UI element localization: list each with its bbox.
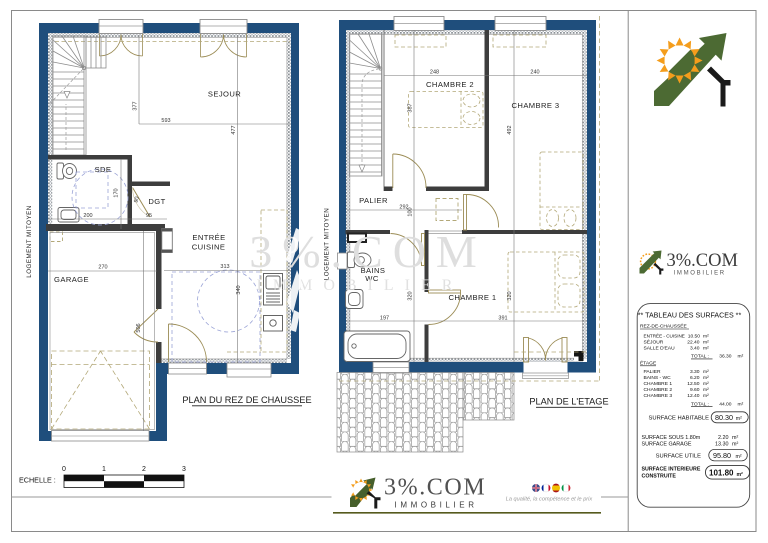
svg-text:m²: m² bbox=[703, 381, 709, 387]
svg-text:248: 248 bbox=[430, 70, 439, 76]
svg-text:CONSTRUITE: CONSTRUITE bbox=[642, 473, 677, 479]
svg-text:170: 170 bbox=[114, 188, 120, 197]
svg-text:95.80: 95.80 bbox=[713, 451, 731, 460]
svg-text:320: 320 bbox=[507, 291, 513, 300]
svg-text:m²: m² bbox=[738, 354, 744, 360]
svg-text:391: 391 bbox=[498, 316, 507, 322]
svg-text:PALIER: PALIER bbox=[644, 369, 662, 375]
svg-text:593: 593 bbox=[161, 118, 170, 124]
svg-text:CHAMBRE 2: CHAMBRE 2 bbox=[426, 80, 474, 89]
svg-text:CUISINE: CUISINE bbox=[192, 243, 226, 252]
svg-text:2.20: 2.20 bbox=[718, 435, 729, 441]
svg-text:PALIER: PALIER bbox=[359, 196, 388, 205]
svg-text:La qualité, la compétence et l: La qualité, la compétence et le prix bbox=[506, 497, 593, 503]
svg-text:270: 270 bbox=[98, 265, 107, 271]
svg-text:SURFACE HABITABLE: SURFACE HABITABLE bbox=[649, 416, 710, 422]
svg-text:CHAMBRE 3: CHAMBRE 3 bbox=[512, 101, 560, 110]
svg-text:1: 1 bbox=[102, 466, 106, 473]
svg-text:CHAMBRE 3: CHAMBRE 3 bbox=[644, 393, 673, 399]
svg-text:m²: m² bbox=[732, 435, 738, 441]
svg-text:101.80: 101.80 bbox=[709, 469, 734, 478]
svg-text:22.40: 22.40 bbox=[687, 340, 700, 346]
svg-text:ENTRÉE: ENTRÉE bbox=[192, 233, 225, 242]
svg-text:3.30: 3.30 bbox=[690, 369, 700, 375]
svg-text:240: 240 bbox=[530, 70, 539, 76]
svg-text:SURFACE INTERIEURE: SURFACE INTERIEURE bbox=[642, 467, 701, 473]
svg-text:IMMOBILIER: IMMOBILIER bbox=[395, 501, 478, 510]
svg-text:197: 197 bbox=[380, 316, 389, 322]
svg-text:ÉTAGE: ÉTAGE bbox=[640, 359, 657, 366]
svg-text:CHAMBRE 1: CHAMBRE 1 bbox=[644, 381, 673, 387]
svg-text:377: 377 bbox=[133, 101, 139, 110]
svg-text:36.30: 36.30 bbox=[719, 354, 732, 360]
svg-text:m²: m² bbox=[703, 387, 709, 393]
svg-text:REZ-DE-CHAUSSÉE: REZ-DE-CHAUSSÉE bbox=[640, 323, 687, 330]
svg-text:95: 95 bbox=[146, 213, 152, 219]
svg-text:m²: m² bbox=[703, 340, 709, 346]
svg-text:m²: m² bbox=[703, 375, 709, 381]
svg-text:80.30: 80.30 bbox=[715, 413, 733, 422]
svg-text:DGT: DGT bbox=[148, 197, 165, 206]
svg-text:m²: m² bbox=[738, 401, 744, 407]
svg-text:3%.COM: 3%.COM bbox=[249, 226, 487, 277]
svg-text:12.40: 12.40 bbox=[687, 393, 700, 399]
svg-text:313: 313 bbox=[220, 264, 229, 270]
svg-text:ECHELLE :: ECHELLE : bbox=[19, 476, 56, 485]
svg-text:3: 3 bbox=[182, 466, 186, 473]
svg-text:SURFACE GARAGE: SURFACE GARAGE bbox=[642, 442, 692, 448]
svg-text:PLAN DE L'ETAGE: PLAN DE L'ETAGE bbox=[529, 397, 608, 407]
svg-text:m²: m² bbox=[703, 393, 709, 399]
svg-text:PLAN DU REZ DE CHAUSSEE: PLAN DU REZ DE CHAUSSEE bbox=[182, 395, 311, 405]
svg-text:12.50: 12.50 bbox=[687, 381, 700, 387]
svg-text:9.60: 9.60 bbox=[690, 387, 700, 393]
svg-text:10.50: 10.50 bbox=[688, 333, 701, 339]
svg-text:SURFACE UTILE: SURFACE UTILE bbox=[656, 454, 702, 460]
svg-text:SEJOUR: SEJOUR bbox=[208, 90, 241, 99]
svg-text:6.20: 6.20 bbox=[690, 375, 700, 381]
svg-text:IMMOBILIER: IMMOBILIER bbox=[674, 271, 726, 277]
svg-text:387: 387 bbox=[408, 103, 414, 112]
svg-text:SURFACE SOUS 1.80m: SURFACE SOUS 1.80m bbox=[642, 435, 701, 441]
svg-text:13.30: 13.30 bbox=[715, 442, 729, 448]
svg-text:SÉJOUR: SÉJOUR bbox=[644, 339, 664, 346]
svg-text:CHAMBRE 2: CHAMBRE 2 bbox=[644, 387, 673, 393]
svg-text:m²: m² bbox=[703, 346, 709, 352]
svg-text:0: 0 bbox=[62, 466, 66, 473]
svg-text:GARAGE: GARAGE bbox=[54, 275, 89, 284]
svg-text:477: 477 bbox=[231, 125, 237, 134]
svg-text:492: 492 bbox=[507, 125, 513, 134]
svg-text:BAINS - WC: BAINS - WC bbox=[644, 375, 672, 381]
svg-text:44.00: 44.00 bbox=[719, 401, 732, 407]
svg-text:506: 506 bbox=[136, 323, 142, 332]
svg-text:m²: m² bbox=[737, 472, 744, 478]
svg-text:** TABLEAU DES SURFACES **: ** TABLEAU DES SURFACES ** bbox=[638, 311, 742, 319]
svg-text:m²: m² bbox=[736, 454, 742, 460]
svg-text:2: 2 bbox=[142, 466, 146, 473]
svg-text:3%.COM: 3%.COM bbox=[667, 251, 738, 271]
svg-text:340: 340 bbox=[236, 285, 242, 294]
svg-text:m²: m² bbox=[703, 369, 709, 375]
svg-text:ENTRÉE - CUISINE: ENTRÉE - CUISINE bbox=[644, 332, 685, 338]
svg-text:SDE: SDE bbox=[95, 165, 112, 174]
svg-text:LOGEMENT MITOYEN: LOGEMENT MITOYEN bbox=[26, 205, 33, 277]
svg-text:m²: m² bbox=[703, 333, 709, 339]
svg-text:3%.COM: 3%.COM bbox=[384, 475, 486, 501]
svg-text:292: 292 bbox=[399, 205, 408, 211]
svg-text:m²: m² bbox=[736, 416, 742, 422]
svg-text:CHAMBRE 1: CHAMBRE 1 bbox=[449, 293, 497, 302]
svg-text:IMMOBILIER: IMMOBILIER bbox=[257, 277, 464, 294]
svg-text:3.40: 3.40 bbox=[690, 346, 700, 352]
svg-text:TOTAL :: TOTAL : bbox=[691, 401, 709, 407]
svg-text:m²: m² bbox=[732, 442, 738, 448]
svg-text:SALLE D'EAU: SALLE D'EAU bbox=[644, 346, 676, 352]
svg-text:200: 200 bbox=[83, 213, 92, 219]
